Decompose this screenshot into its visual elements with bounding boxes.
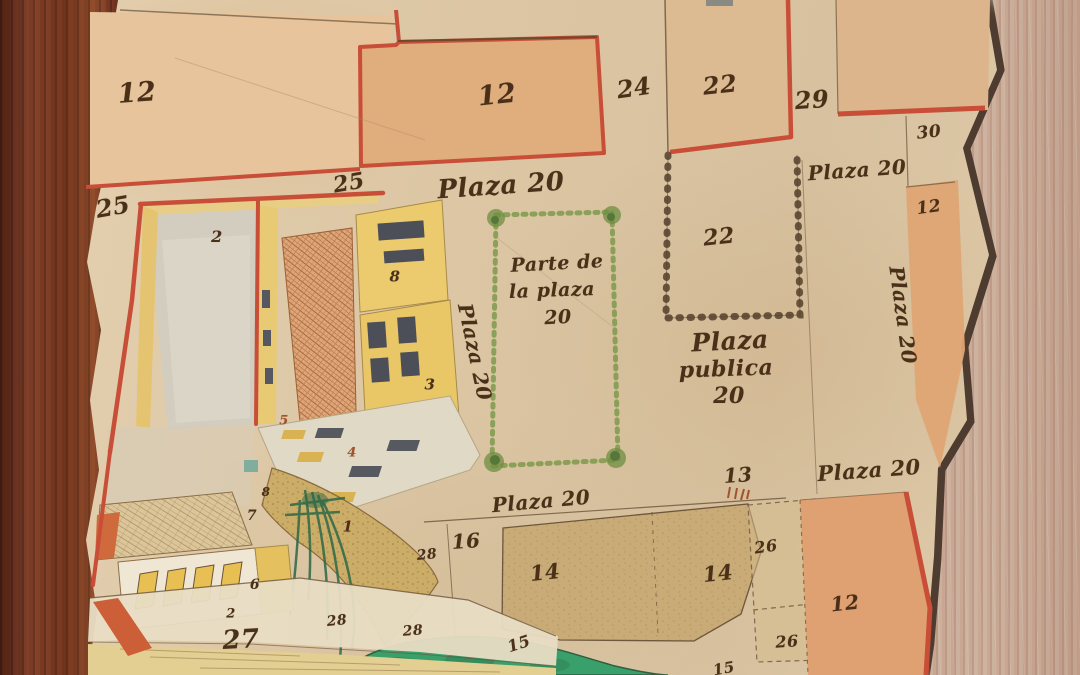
framed-map-photo: 1225251224222930Plaza 20Plaza 2012Plaza … — [0, 0, 1080, 675]
map-paper — [0, 0, 1080, 675]
